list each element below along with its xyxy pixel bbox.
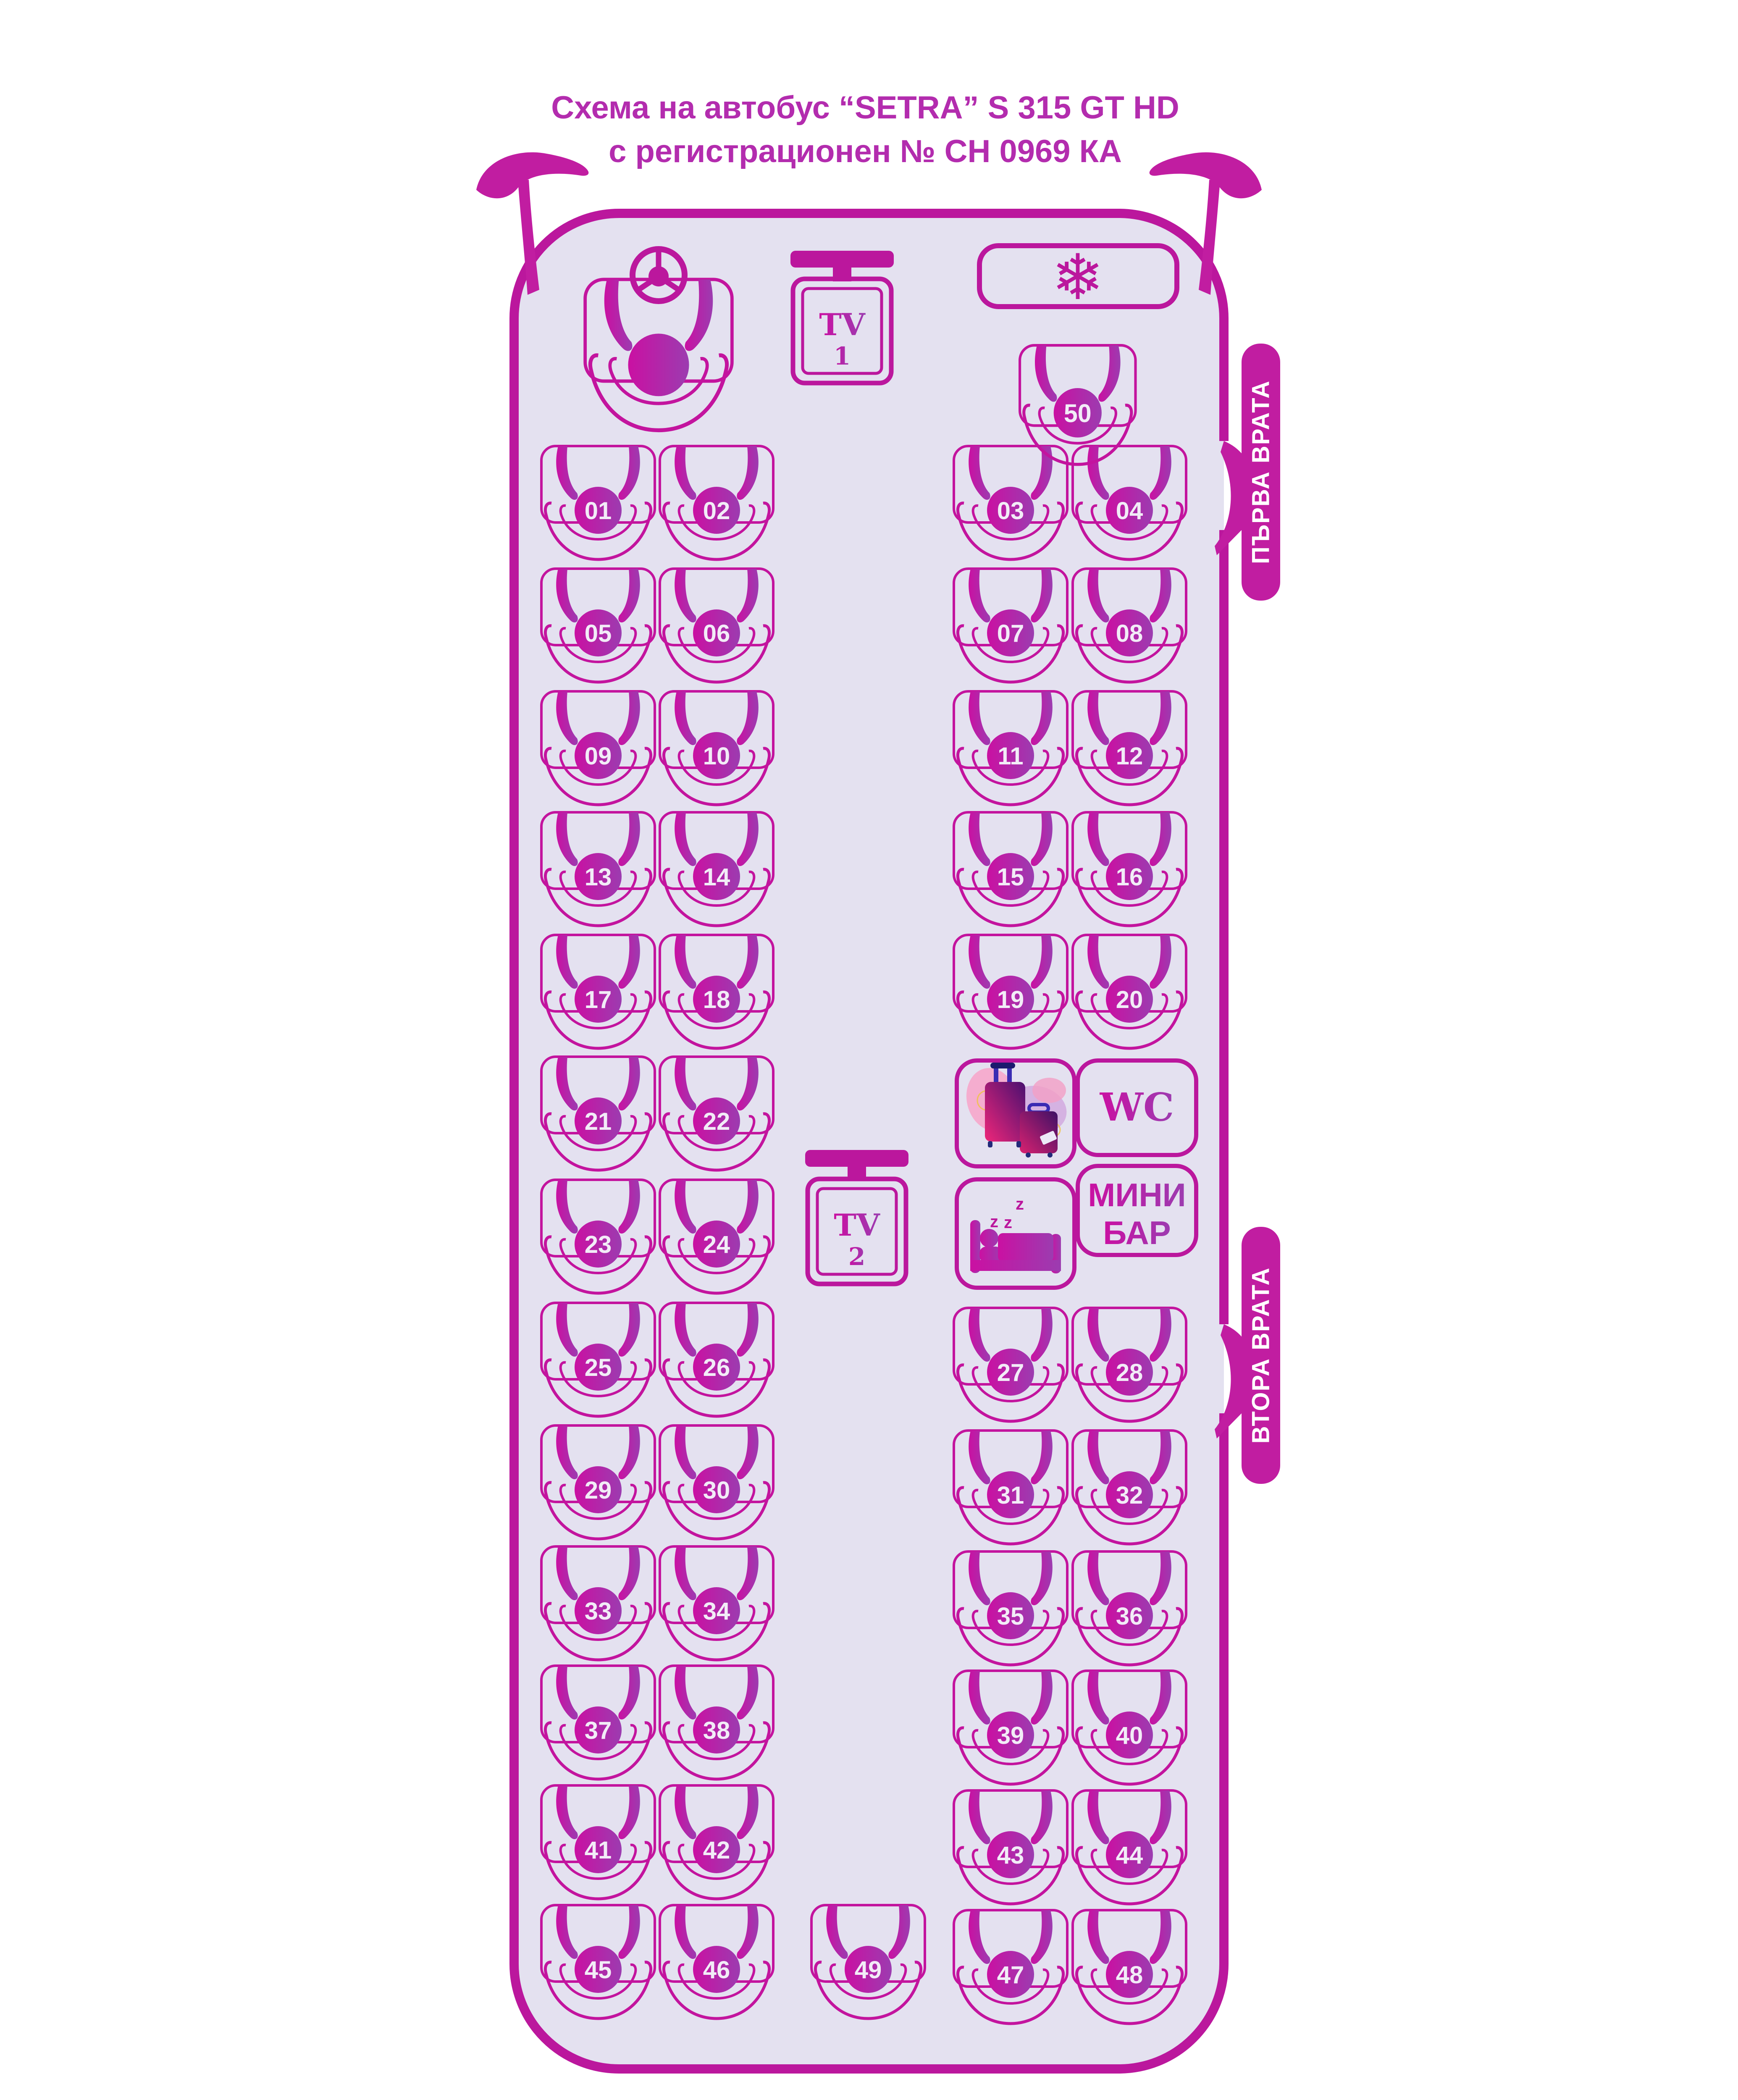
seat-number: 25 xyxy=(585,1354,612,1381)
seat-number: 27 xyxy=(997,1359,1024,1386)
seat-number: 39 xyxy=(997,1722,1024,1749)
seat-number: 08 xyxy=(1116,620,1143,647)
seat-number: 45 xyxy=(585,1956,612,1984)
door-2-label-text: ВТОРА ВРАТА xyxy=(1247,1267,1275,1444)
seat-number: 50 xyxy=(1064,399,1092,428)
seat-number: 32 xyxy=(1116,1482,1143,1509)
seat-number: 35 xyxy=(997,1603,1024,1630)
seat-number: 23 xyxy=(585,1231,612,1258)
seat-number: 33 xyxy=(585,1598,612,1625)
seat-number: 12 xyxy=(1116,743,1143,770)
seat-number: 06 xyxy=(703,620,730,647)
seat-number: 09 xyxy=(585,743,612,770)
seat-number: 49 xyxy=(855,1956,882,1984)
seat-number: 28 xyxy=(1116,1359,1143,1386)
sleep-z-3: z xyxy=(990,1213,998,1231)
seat-number: 48 xyxy=(1116,1961,1143,1989)
seat-number: 05 xyxy=(585,620,612,647)
seat-number: 13 xyxy=(585,864,612,891)
seat-number: 11 xyxy=(998,743,1023,770)
seat-number: 26 xyxy=(703,1354,730,1381)
tv-1-number: 1 xyxy=(834,342,851,370)
seat-number: 30 xyxy=(703,1477,730,1504)
door-2-label: ВТОРА ВРАТА xyxy=(1242,1227,1280,1484)
seat-number: 47 xyxy=(997,1961,1024,1989)
seat-number: 38 xyxy=(703,1717,730,1744)
seat-number: 19 xyxy=(997,986,1024,1013)
seat-number: 16 xyxy=(1116,864,1143,891)
seat-number: 31 xyxy=(997,1482,1024,1509)
seat-number: 46 xyxy=(703,1956,730,1984)
seat-number: 18 xyxy=(703,986,730,1013)
tv-2-number: 2 xyxy=(848,1242,865,1271)
seat-number: 07 xyxy=(997,620,1024,647)
seat-number: 10 xyxy=(703,743,730,770)
seat-number: 21 xyxy=(585,1108,612,1135)
seat-number: 40 xyxy=(1116,1722,1143,1749)
wc-label: WC xyxy=(1100,1084,1174,1130)
snowflake-icon: ❄ xyxy=(1051,241,1104,314)
seat-number: 03 xyxy=(997,497,1024,525)
seat-number: 22 xyxy=(703,1108,730,1135)
seat-number: 02 xyxy=(703,497,730,525)
seat-number: 34 xyxy=(703,1598,730,1625)
seat-number: 01 xyxy=(585,497,612,525)
seat-number: 20 xyxy=(1116,986,1143,1013)
door-1-label: ПЪРВА ВРАТА xyxy=(1242,344,1280,601)
page-title-line2: с регистрационен № СН 0969 КА xyxy=(609,134,1122,169)
seat-number: 17 xyxy=(585,986,612,1013)
seat-number: 41 xyxy=(585,1837,612,1864)
tv-2-label: TV xyxy=(834,1207,880,1243)
seat-number: 15 xyxy=(997,864,1024,891)
seat-number: 37 xyxy=(585,1717,612,1744)
page-title-line1: Схема на автобус “SETRA” S 315 GT HD xyxy=(551,90,1179,126)
seat-number: 24 xyxy=(703,1231,730,1258)
seat-number: 14 xyxy=(703,864,730,891)
sleep-z-2: z xyxy=(1004,1213,1012,1232)
minibar-label-line1: МИНИ xyxy=(1088,1176,1186,1213)
minibar-label-line2: БАР xyxy=(1103,1214,1171,1251)
tv-1-label: TV xyxy=(819,307,866,342)
seat-number: 44 xyxy=(1116,1842,1143,1869)
seat-number: 43 xyxy=(997,1842,1024,1869)
seat-number: 29 xyxy=(585,1477,612,1504)
door-1-label-text: ПЪРВА ВРАТА xyxy=(1247,380,1275,564)
seat-number: 42 xyxy=(703,1837,730,1864)
sleep-z-1: z xyxy=(1016,1195,1024,1213)
seat-number: 36 xyxy=(1116,1603,1143,1630)
seat-number: 04 xyxy=(1116,497,1143,525)
bus-seat-map: Схема на автобус “SETRA” S 315 GT HD с р… xyxy=(0,0,1738,2100)
